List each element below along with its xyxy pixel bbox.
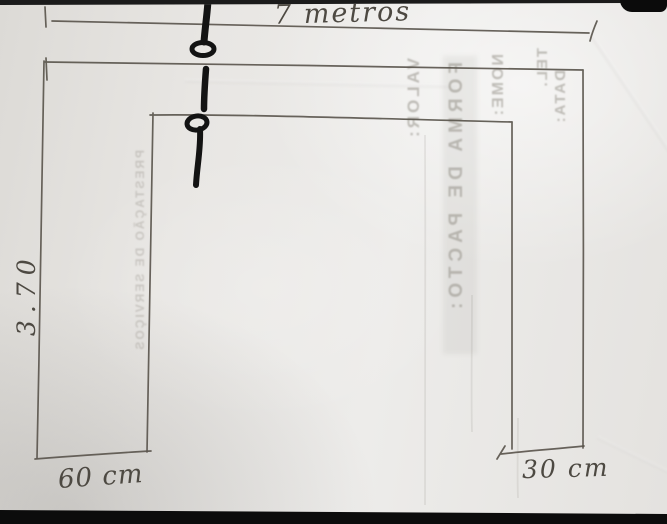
marker-stroke-top bbox=[192, 1, 214, 56]
bleedthrough-text-forma-de-pacto: FORMA DE PACTO: bbox=[446, 62, 468, 314]
bleedthrough-text-tel: TEL. bbox=[534, 48, 551, 89]
bleedthrough-text-nome: NOME: bbox=[490, 54, 508, 117]
paper-crease bbox=[590, 34, 667, 160]
dimension-label-7-metros: 7 metros bbox=[274, 0, 412, 31]
dark-object-top-right bbox=[620, 0, 667, 12]
outer-structure-outline bbox=[37, 58, 583, 458]
dimension-label-60cm: 60 cm bbox=[57, 459, 144, 495]
bleedthrough-text-data: DATA: bbox=[552, 70, 569, 124]
marker-stroke-middle-dash bbox=[204, 69, 206, 109]
photo-of-paper-sketch: VALOR: FORMA DE PACTO: NOME: TEL. DATA: … bbox=[0, 0, 667, 524]
bleedthrough-text-valor: VALOR: bbox=[404, 58, 424, 140]
paper-sheet: VALOR: FORMA DE PACTO: NOME: TEL. DATA: … bbox=[0, 0, 667, 524]
marker-stroke-loop-tail bbox=[186, 115, 208, 185]
dimension-label-3-70: 3.70 bbox=[12, 252, 41, 336]
dimension-label-30cm: 30 cm bbox=[522, 453, 610, 484]
left-column-base-line bbox=[35, 451, 151, 459]
bleedthrough-text-prestacao: PRESTAÇÃO DE SERVIÇOS bbox=[133, 150, 147, 352]
